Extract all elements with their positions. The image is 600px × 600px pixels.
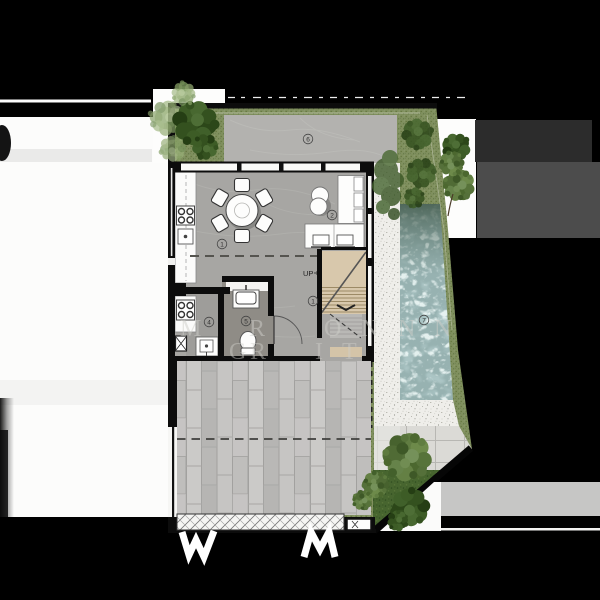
svg-text:6: 6	[306, 137, 310, 144]
svg-text:T: T	[342, 339, 357, 365]
svg-text:UP: UP	[303, 269, 313, 278]
svg-text:R: R	[250, 339, 266, 365]
svg-text:I: I	[315, 339, 323, 365]
svg-text:M: M	[180, 316, 201, 342]
svg-text:N: N	[398, 316, 415, 342]
svg-text:4: 4	[207, 320, 211, 327]
svg-text:1: 1	[220, 242, 224, 249]
svg-text:O: O	[324, 316, 341, 342]
svg-text:G: G	[229, 339, 246, 365]
svg-text:1: 1	[311, 299, 315, 306]
svg-text:7: 7	[422, 318, 426, 325]
svg-text:5: 5	[244, 319, 248, 326]
svg-text:N: N	[434, 316, 451, 342]
svg-text:N: N	[361, 316, 378, 342]
svg-text:2: 2	[330, 213, 334, 220]
